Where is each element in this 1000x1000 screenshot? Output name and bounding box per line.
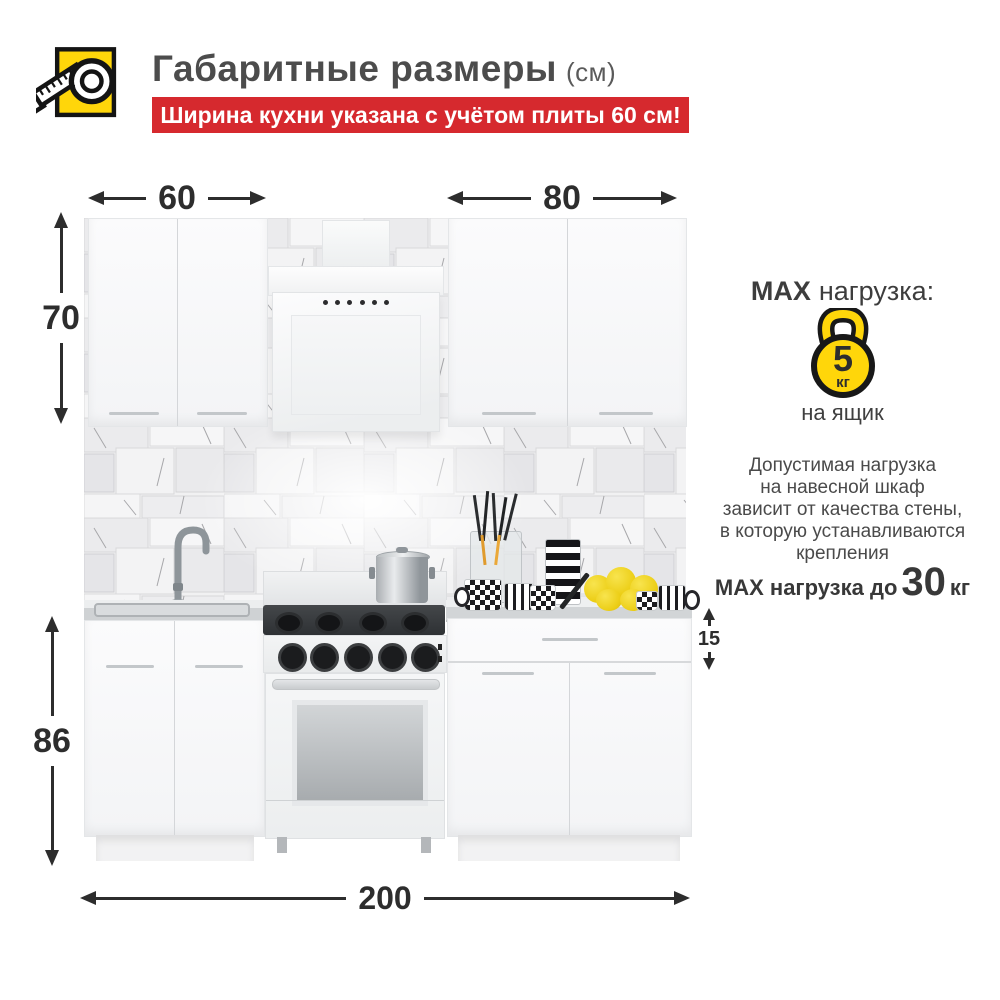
warning-banner: Ширина кухни указана с учётом плиты 60 с… [152, 97, 689, 133]
title-unit: (см) [566, 57, 616, 87]
door-gap [569, 663, 570, 836]
stove-leg [277, 837, 287, 853]
door-handle [109, 412, 159, 415]
max-load-title-bold: MAX [751, 276, 811, 306]
kettlebell-weight-unit: кг [806, 374, 880, 391]
control-panel [263, 635, 447, 673]
note-line: на навесной шкаф [695, 477, 990, 499]
dimension-upper-right-width: 80 [447, 181, 677, 215]
oven-door [265, 673, 445, 839]
drawer-front [448, 619, 691, 663]
plinth [458, 835, 680, 861]
note-line: в которую устанавливаются [695, 521, 990, 543]
note-line: зависит от качества стены, [695, 499, 990, 521]
dimension-value: 70 [42, 293, 80, 343]
plinth [96, 835, 254, 861]
small-checkered-mug [636, 591, 658, 611]
sink-basin [94, 603, 250, 617]
hood-glass-panel [272, 292, 440, 432]
max-load-title: MAXнагрузка: [695, 276, 990, 307]
counter-accessories [468, 495, 688, 609]
wall-cabinet-right [448, 218, 687, 427]
dimension-value: 60 [146, 181, 208, 215]
hood-chimney [322, 220, 390, 270]
door-gap [177, 219, 178, 426]
dimension-lower-height: 86 [26, 616, 78, 866]
dimension-value: 200 [346, 882, 423, 914]
dimension-value: 80 [531, 181, 593, 215]
door-handle [482, 412, 536, 415]
base-cabinet-sink [84, 620, 265, 837]
cooktop [263, 605, 445, 635]
dimension-value: 86 [33, 716, 71, 766]
dimension-drawer-height: 15 [694, 608, 724, 670]
kitchen-render [80, 195, 694, 875]
hood-controls [323, 300, 389, 305]
stove-leg [421, 837, 431, 853]
lemon [596, 589, 622, 611]
per-item-label: на ящик [695, 400, 990, 426]
dimension-value: 15 [698, 626, 720, 652]
oven-drawer-line [266, 800, 444, 801]
oven-handle [272, 679, 440, 690]
title-text: Габаритные размеры [152, 48, 557, 89]
door-gap [174, 621, 175, 836]
max-wall-load-prefix: MAX нагрузка до [715, 575, 897, 600]
drawer-handle [542, 638, 598, 641]
page-title: Габаритные размеры(см) [152, 48, 616, 90]
max-wall-load: MAX нагрузка до30кг [695, 560, 990, 605]
faucet [168, 523, 214, 607]
door-handle [195, 665, 243, 668]
dimension-total-width: 200 [80, 882, 690, 914]
striped-jug [658, 585, 686, 611]
door-gap [567, 219, 568, 426]
countertop-sink [84, 600, 264, 622]
note-line: Допустимая нагрузка [695, 455, 990, 477]
dimension-upper-left-width: 60 [88, 181, 266, 215]
max-wall-load-value: 30 [901, 560, 946, 604]
door-handle [482, 672, 534, 675]
door-handle [604, 672, 656, 675]
stove [263, 571, 445, 855]
oven-window [292, 700, 428, 806]
door-handle [197, 412, 247, 415]
hood-glass-inner [291, 315, 421, 415]
dimension-upper-height: 70 [36, 212, 86, 424]
kettlebell-icon: 5 кг [806, 308, 880, 398]
base-cabinet-right [447, 618, 692, 837]
door-handle [599, 412, 653, 415]
product-infographic: Габаритные размеры(см) Ширина кухни указ… [0, 0, 1000, 1000]
cooking-pot [374, 551, 430, 605]
max-wall-load-unit: кг [950, 575, 970, 600]
wall-cabinet-left [88, 218, 268, 427]
max-load-title-rest: нагрузка: [819, 276, 934, 306]
checkered-mug [530, 585, 556, 611]
load-note: Допустимая нагрузка на навесной шкаф зав… [695, 455, 990, 565]
tape-measure-icon [36, 44, 128, 122]
door-handle [106, 665, 154, 668]
